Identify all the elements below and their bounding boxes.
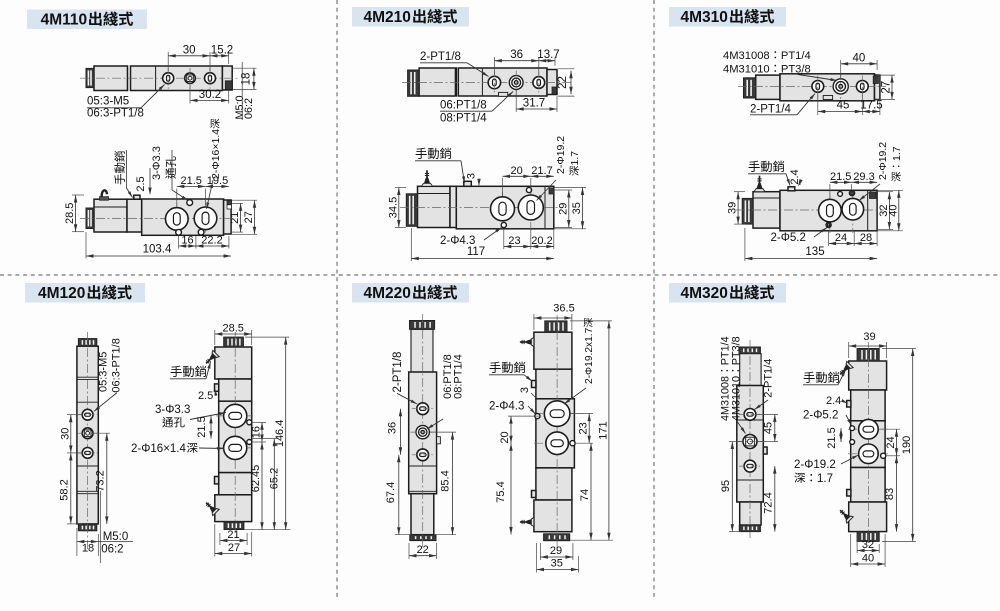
svg-text:40: 40 xyxy=(887,204,899,216)
svg-text:20.2: 20.2 xyxy=(531,235,552,247)
svg-text:190: 190 xyxy=(901,436,913,454)
svg-text:24: 24 xyxy=(835,232,847,244)
svg-text:2-Φ16×1.4: 2-Φ16×1.4 xyxy=(210,129,222,179)
svg-text:4M110: 4M110 xyxy=(41,12,88,29)
svg-text:103.4: 103.4 xyxy=(143,244,172,256)
svg-text:08:PT1/4: 08:PT1/4 xyxy=(453,354,465,399)
svg-text:4M31010: 4M31010 xyxy=(723,64,770,76)
svg-text:2-Φ19.2: 2-Φ19.2 xyxy=(555,136,567,174)
svg-text:171: 171 xyxy=(597,421,609,439)
svg-text:16: 16 xyxy=(181,235,193,247)
svg-text:20: 20 xyxy=(499,431,511,443)
svg-text:4M310: 4M310 xyxy=(681,9,728,26)
svg-text:2-Φ19.2x1.7: 2-Φ19.2x1.7 xyxy=(584,327,595,384)
svg-text:45: 45 xyxy=(763,422,775,434)
svg-text:06:PT1/8: 06:PT1/8 xyxy=(440,100,487,112)
svg-text:135: 135 xyxy=(805,246,824,258)
svg-text:29: 29 xyxy=(550,545,562,557)
svg-text:67.4: 67.4 xyxy=(385,482,397,503)
svg-text:05:3-M5: 05:3-M5 xyxy=(87,96,129,108)
svg-text:95: 95 xyxy=(720,480,732,492)
svg-text:2-Φ16×1.4: 2-Φ16×1.4 xyxy=(131,443,186,455)
svg-text:PT1/4: PT1/4 xyxy=(781,50,811,62)
svg-text:28.5: 28.5 xyxy=(64,203,76,224)
svg-text:13.7: 13.7 xyxy=(537,49,559,61)
svg-text:23: 23 xyxy=(508,235,520,247)
svg-text:2-PT1/8: 2-PT1/8 xyxy=(420,51,461,63)
svg-text:21.5: 21.5 xyxy=(830,171,851,183)
svg-text:2-PT1/4: 2-PT1/4 xyxy=(750,104,792,116)
svg-text:2-Φ4.3: 2-Φ4.3 xyxy=(489,401,524,413)
svg-text:34.5: 34.5 xyxy=(387,197,399,218)
svg-text:75.4: 75.4 xyxy=(495,481,507,502)
svg-text:2.5: 2.5 xyxy=(198,390,213,402)
svg-text:21: 21 xyxy=(229,212,241,224)
svg-text:45: 45 xyxy=(837,100,850,112)
svg-text:16: 16 xyxy=(251,426,263,438)
svg-text:3: 3 xyxy=(466,173,478,179)
svg-text:22: 22 xyxy=(417,544,429,556)
svg-text:31.7: 31.7 xyxy=(523,98,545,110)
svg-text:36: 36 xyxy=(510,49,523,61)
svg-text:74: 74 xyxy=(579,489,591,501)
svg-text:PT3/8: PT3/8 xyxy=(781,64,811,76)
svg-text:27: 27 xyxy=(243,211,255,223)
svg-text:3-Φ3.3: 3-Φ3.3 xyxy=(151,146,163,180)
svg-text:65.2: 65.2 xyxy=(269,468,281,489)
svg-text:05:3-M5: 05:3-M5 xyxy=(98,352,110,392)
svg-text:06:2: 06:2 xyxy=(243,98,255,119)
svg-text:117: 117 xyxy=(467,246,485,258)
svg-text:39: 39 xyxy=(727,202,739,214)
svg-text:36.5: 36.5 xyxy=(553,303,574,315)
svg-text:2-Φ19.2: 2-Φ19.2 xyxy=(794,459,836,471)
svg-text:27: 27 xyxy=(228,542,240,554)
svg-text:3: 3 xyxy=(519,387,531,393)
svg-text:29.3: 29.3 xyxy=(853,171,874,183)
svg-text:146.4: 146.4 xyxy=(274,420,286,448)
svg-text:85.4: 85.4 xyxy=(440,470,452,491)
svg-text:73.2: 73.2 xyxy=(95,470,107,491)
svg-text:4M220: 4M220 xyxy=(364,285,411,302)
svg-text:21.5: 21.5 xyxy=(196,416,208,437)
svg-text:18: 18 xyxy=(82,543,94,555)
svg-text:32: 32 xyxy=(862,539,874,551)
svg-text:21: 21 xyxy=(227,529,239,541)
svg-text:17.5: 17.5 xyxy=(860,100,882,112)
svg-text:PT3/8: PT3/8 xyxy=(731,336,743,365)
svg-text:35: 35 xyxy=(571,202,583,214)
svg-text:28.5: 28.5 xyxy=(222,323,243,335)
svg-text:22: 22 xyxy=(557,76,569,89)
svg-text:40: 40 xyxy=(853,52,866,64)
svg-text:30: 30 xyxy=(183,44,196,56)
svg-text:24: 24 xyxy=(885,436,897,448)
svg-text:06:3-PT1/8: 06:3-PT1/8 xyxy=(111,338,123,392)
svg-text:40: 40 xyxy=(862,552,874,564)
svg-text:22.2: 22.2 xyxy=(201,235,222,247)
svg-text:30: 30 xyxy=(59,428,71,440)
svg-text:1.7: 1.7 xyxy=(817,473,833,485)
svg-text:4M31008: 4M31008 xyxy=(723,50,770,62)
svg-text:2-Φ5.2: 2-Φ5.2 xyxy=(803,410,838,422)
svg-text:3-Φ3.3: 3-Φ3.3 xyxy=(155,404,190,416)
svg-text:2.5: 2.5 xyxy=(135,176,147,191)
svg-text:15.2: 15.2 xyxy=(211,44,233,56)
svg-text:2-Φ19.2: 2-Φ19.2 xyxy=(877,142,889,180)
svg-text:29: 29 xyxy=(557,203,569,215)
svg-text:M5:0: M5:0 xyxy=(103,531,129,543)
svg-text:4M210: 4M210 xyxy=(364,9,411,26)
svg-text:21.7: 21.7 xyxy=(531,165,552,177)
svg-text:06:3-PT1/8: 06:3-PT1/8 xyxy=(87,108,144,120)
svg-text:36: 36 xyxy=(387,422,399,434)
svg-text:28: 28 xyxy=(860,232,872,244)
svg-text:4M120: 4M120 xyxy=(38,285,85,302)
svg-text:2.4: 2.4 xyxy=(826,395,841,407)
svg-text:06:2: 06:2 xyxy=(101,544,123,556)
svg-text:2-PT1/4: 2-PT1/4 xyxy=(763,359,775,398)
svg-text:35: 35 xyxy=(551,558,563,570)
svg-text:39: 39 xyxy=(863,331,875,343)
svg-text:23: 23 xyxy=(578,422,590,434)
svg-text:4M320: 4M320 xyxy=(681,285,728,302)
svg-text:08:PT1/4: 08:PT1/4 xyxy=(440,113,487,125)
svg-text:21.5: 21.5 xyxy=(180,175,201,187)
svg-text:2-Φ5.2: 2-Φ5.2 xyxy=(771,232,806,244)
svg-text:62.45: 62.45 xyxy=(250,465,262,493)
svg-text:58.2: 58.2 xyxy=(59,479,71,500)
svg-text:4M31010: 4M31010 xyxy=(731,376,743,421)
svg-text:2-PT1/8: 2-PT1/8 xyxy=(392,352,404,393)
svg-text:72.4: 72.4 xyxy=(763,492,775,513)
svg-text:30.2: 30.2 xyxy=(199,89,221,101)
svg-text:21.5: 21.5 xyxy=(826,427,838,448)
svg-text:1.7: 1.7 xyxy=(891,146,903,161)
svg-text:20: 20 xyxy=(510,165,522,177)
svg-text:1.7: 1.7 xyxy=(569,151,581,166)
svg-text:83: 83 xyxy=(884,488,896,500)
svg-text:27: 27 xyxy=(881,81,893,94)
